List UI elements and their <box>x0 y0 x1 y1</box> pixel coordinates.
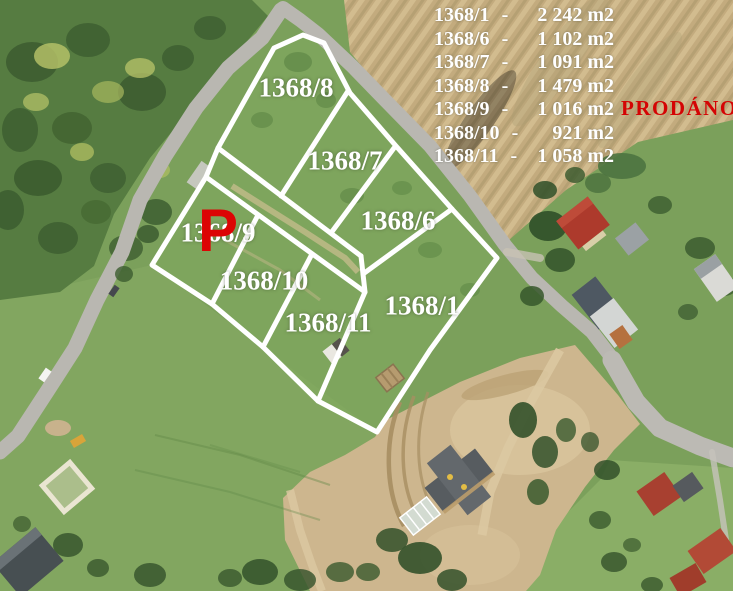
legend-parcel-id: 1368/1 <box>434 4 490 28</box>
parcel-label-1368-11[interactable]: 1368/11 <box>284 308 371 339</box>
legend-dash: - <box>502 98 509 122</box>
parcel-label-1368-1[interactable]: 1368/1 <box>384 291 459 322</box>
legend-area: 1 479 m2 <box>537 75 614 99</box>
legend-dash: - <box>510 145 517 169</box>
legend-area: 1 016 m2 <box>537 98 614 122</box>
parcel-label-1368-10[interactable]: 1368/10 <box>220 266 309 297</box>
parcel-label-1368-6[interactable]: 1368/6 <box>360 206 435 237</box>
legend-row: 1368/9 - 1 016 m2 <box>434 98 614 122</box>
parcel-aerial-map: 1368/8 1368/7 1368/6 1368/9 1368/10 1368… <box>0 0 733 591</box>
legend-row: 1368/10 - 921 m2 <box>434 122 614 146</box>
legend: 1368/1 - 2 242 m2 1368/6 - 1 102 m2 1368… <box>434 4 614 169</box>
legend-row: 1368/11 - 1 058 m2 <box>434 145 614 169</box>
legend-dash: - <box>502 4 509 28</box>
sold-parcel-marker: P <box>198 201 238 261</box>
legend-parcel-id: 1368/6 <box>434 28 490 52</box>
legend-parcel-id: 1368/7 <box>434 51 490 75</box>
legend-area: 1 058 m2 <box>537 145 614 169</box>
legend-row: 1368/1 - 2 242 m2 <box>434 4 614 28</box>
legend-parcel-id: 1368/8 <box>434 75 490 99</box>
parcel-label-1368-8[interactable]: 1368/8 <box>258 73 333 104</box>
construction-light <box>461 484 467 490</box>
parcel-label-1368-7[interactable]: 1368/7 <box>307 146 382 177</box>
legend-dash: - <box>502 51 509 75</box>
legend-area: 1 102 m2 <box>537 28 614 52</box>
legend-row: 1368/8 - 1 479 m2 <box>434 75 614 99</box>
legend-dash: - <box>502 75 509 99</box>
legend-row: 1368/7 - 1 091 m2 <box>434 51 614 75</box>
sold-note: PRODÁNO <box>621 96 733 121</box>
legend-row: 1368/6 - 1 102 m2 <box>434 28 614 52</box>
construction-light <box>447 474 453 480</box>
legend-dash: - <box>502 28 509 52</box>
legend-area: 2 242 m2 <box>537 4 614 28</box>
legend-parcel-id: 1368/10 <box>434 122 500 146</box>
legend-parcel-id: 1368/9 <box>434 98 490 122</box>
legend-parcel-id: 1368/11 <box>434 145 498 169</box>
legend-area: 1 091 m2 <box>537 51 614 75</box>
aerial-photo <box>0 0 733 591</box>
legend-dash: - <box>512 122 519 146</box>
legend-area: 921 m2 <box>552 122 614 146</box>
